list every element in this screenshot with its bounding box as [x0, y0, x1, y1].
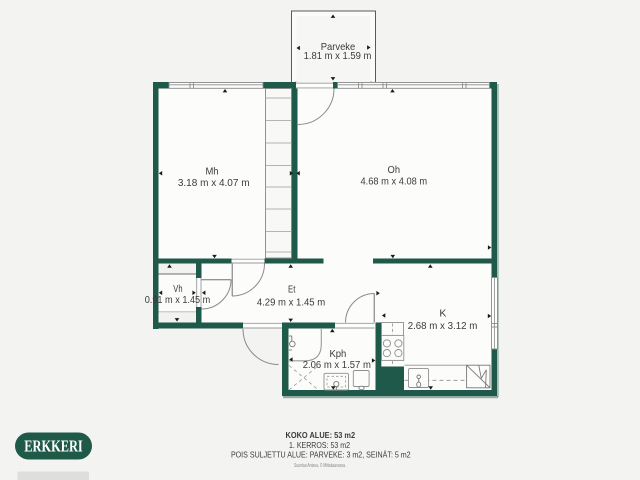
- svg-text:POIS SULJETTU ALUE: PARVEKE: 3: POIS SULJETTU ALUE: PARVEKE: 3 m2, SEINÄ…: [231, 450, 411, 460]
- svg-text:Vh: Vh: [173, 283, 182, 295]
- svg-text:Et: Et: [288, 284, 295, 296]
- svg-text:0.91 m x 1.45 m: 0.91 m x 1.45 m: [145, 295, 211, 306]
- svg-text:2.06 m x 1.57 m: 2.06 m x 1.57 m: [303, 360, 371, 371]
- svg-text:Oh: Oh: [388, 164, 401, 176]
- svg-text:1. KERROS: 53 m2: 1. KERROS: 53 m2: [289, 440, 350, 450]
- svg-text:Suuntaa Antava, © Mittakaavass: Suuntaa Antava, © Mittakaavassa.: [294, 462, 346, 469]
- svg-text:4.29 m x 1.45 m: 4.29 m x 1.45 m: [257, 298, 325, 309]
- svg-text:2.68 m x 3.12 m: 2.68 m x 3.12 m: [408, 321, 478, 332]
- svg-text:K: K: [439, 307, 446, 319]
- svg-text:4.68 m x 4.08 m: 4.68 m x 4.08 m: [360, 177, 427, 188]
- svg-text:Mh: Mh: [205, 165, 218, 177]
- svg-text:1.81 m x 1.59 m: 1.81 m x 1.59 m: [304, 51, 372, 62]
- svg-text:KOKO ALUE: 53 m2: KOKO ALUE: 53 m2: [286, 430, 356, 440]
- svg-text:ERKKERI: ERKKERI: [24, 437, 83, 456]
- svg-text:3.18 m x 4.07 m: 3.18 m x 4.07 m: [178, 178, 250, 189]
- svg-text:Kph: Kph: [329, 348, 346, 360]
